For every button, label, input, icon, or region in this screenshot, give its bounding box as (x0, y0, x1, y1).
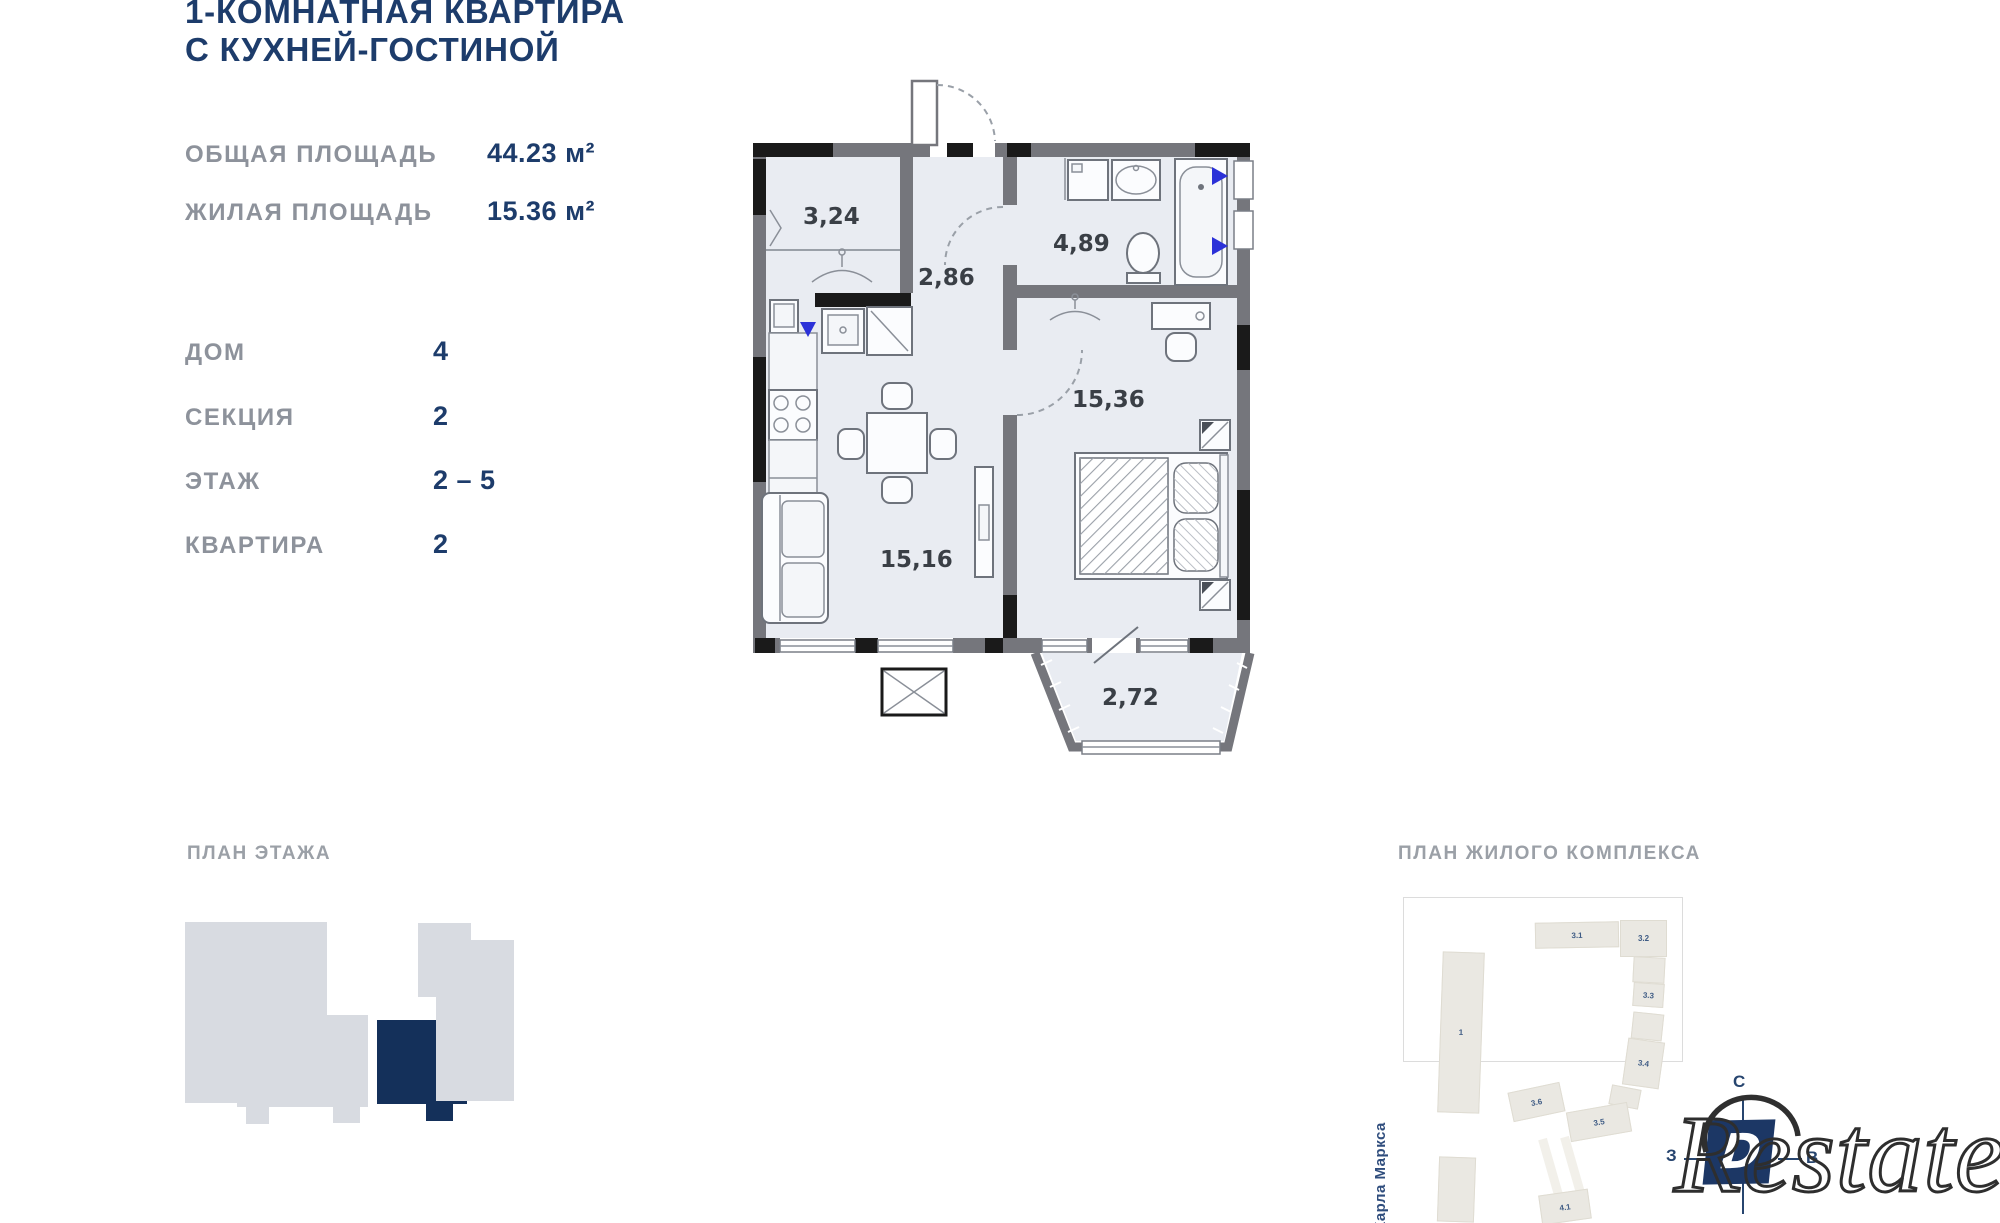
apartment-label: КВАРТИРА (185, 532, 325, 560)
floor-position-diagram (185, 915, 525, 1130)
diagram-section (333, 1107, 360, 1123)
map-building-4-1: 4.1 (1538, 1189, 1592, 1223)
diagram-section (436, 940, 514, 1101)
room-label-bathroom: 4,89 (1053, 231, 1110, 257)
street-name-label: Карла Маркса (1372, 1056, 1389, 1223)
room-label-hallway: 3,24 (803, 204, 860, 230)
total-area-label: ОБЩАЯ ПЛОЩАДЬ (185, 141, 437, 169)
bed-icon (1075, 453, 1228, 579)
room-label-bedroom: 15,36 (1072, 387, 1145, 413)
tv-console-icon (975, 467, 993, 577)
map-building-3-5: 3.5 (1566, 1102, 1632, 1142)
section-label: СЕКЦИЯ (185, 404, 295, 432)
floor-label: ЭТАЖ (185, 468, 261, 496)
diagram-section (246, 1107, 269, 1124)
page-title-line1: 1-КОМНАТНАЯ КВАРТИРА (185, 0, 625, 31)
living-area-label: ЖИЛАЯ ПЛОЩАДЬ (185, 199, 433, 227)
apartment-value: 2 (433, 529, 449, 560)
floorplan-image: 3,24 2,86 4,89 15,36 15,16 2,72 (750, 75, 1260, 775)
map-building-3-3: 3.3 (1632, 982, 1665, 1008)
entry-door-icon (912, 81, 995, 145)
map-building-3-2: 3.2 (1620, 920, 1667, 957)
map-road (1538, 1138, 1563, 1196)
room-label-balcony: 2,72 (1102, 685, 1159, 711)
house-value: 4 (433, 336, 449, 367)
map-building-3-1: 3.1 (1535, 921, 1619, 948)
sofa-icon (762, 493, 828, 623)
ac-unit-icon (882, 669, 946, 715)
total-area-value: 44.23 м² (487, 138, 595, 169)
house-label: ДОМ (185, 339, 246, 367)
restate-watermark: Restate (1674, 1094, 2000, 1215)
room-label-corridor: 2,86 (918, 265, 975, 291)
floor-value: 2 – 5 (433, 465, 496, 496)
floor-plan-section-title: ПЛАН ЭТАЖА (187, 843, 331, 865)
map-building (1437, 1156, 1476, 1222)
map-building (1631, 1011, 1665, 1041)
listing-placard: 1-КОМНАТНАЯ КВАРТИРА С КУХНЕЙ-ГОСТИНОЙ О… (0, 0, 2000, 1223)
map-road (1560, 1136, 1585, 1194)
living-area-value: 15.36 м² (487, 196, 595, 227)
map-building (1632, 956, 1665, 984)
room-label-living: 15,16 (880, 547, 953, 573)
section-value: 2 (433, 401, 449, 432)
diagram-section-highlighted (426, 1104, 453, 1121)
complex-section-title: ПЛАН ЖИЛОГО КОМПЛЕКСА (1398, 843, 1701, 865)
page-title: 1-КОМНАТНАЯ КВАРТИРА С КУХНЕЙ-ГОСТИНОЙ (185, 0, 625, 69)
map-building-3-6: 3.6 (1507, 1082, 1565, 1122)
map-building-1: 1 (1437, 951, 1485, 1113)
map-building-3-4: 3.4 (1622, 1038, 1665, 1090)
page-title-line2: С КУХНЕЙ-ГОСТИНОЙ (185, 31, 625, 69)
diagram-section (237, 1015, 368, 1107)
